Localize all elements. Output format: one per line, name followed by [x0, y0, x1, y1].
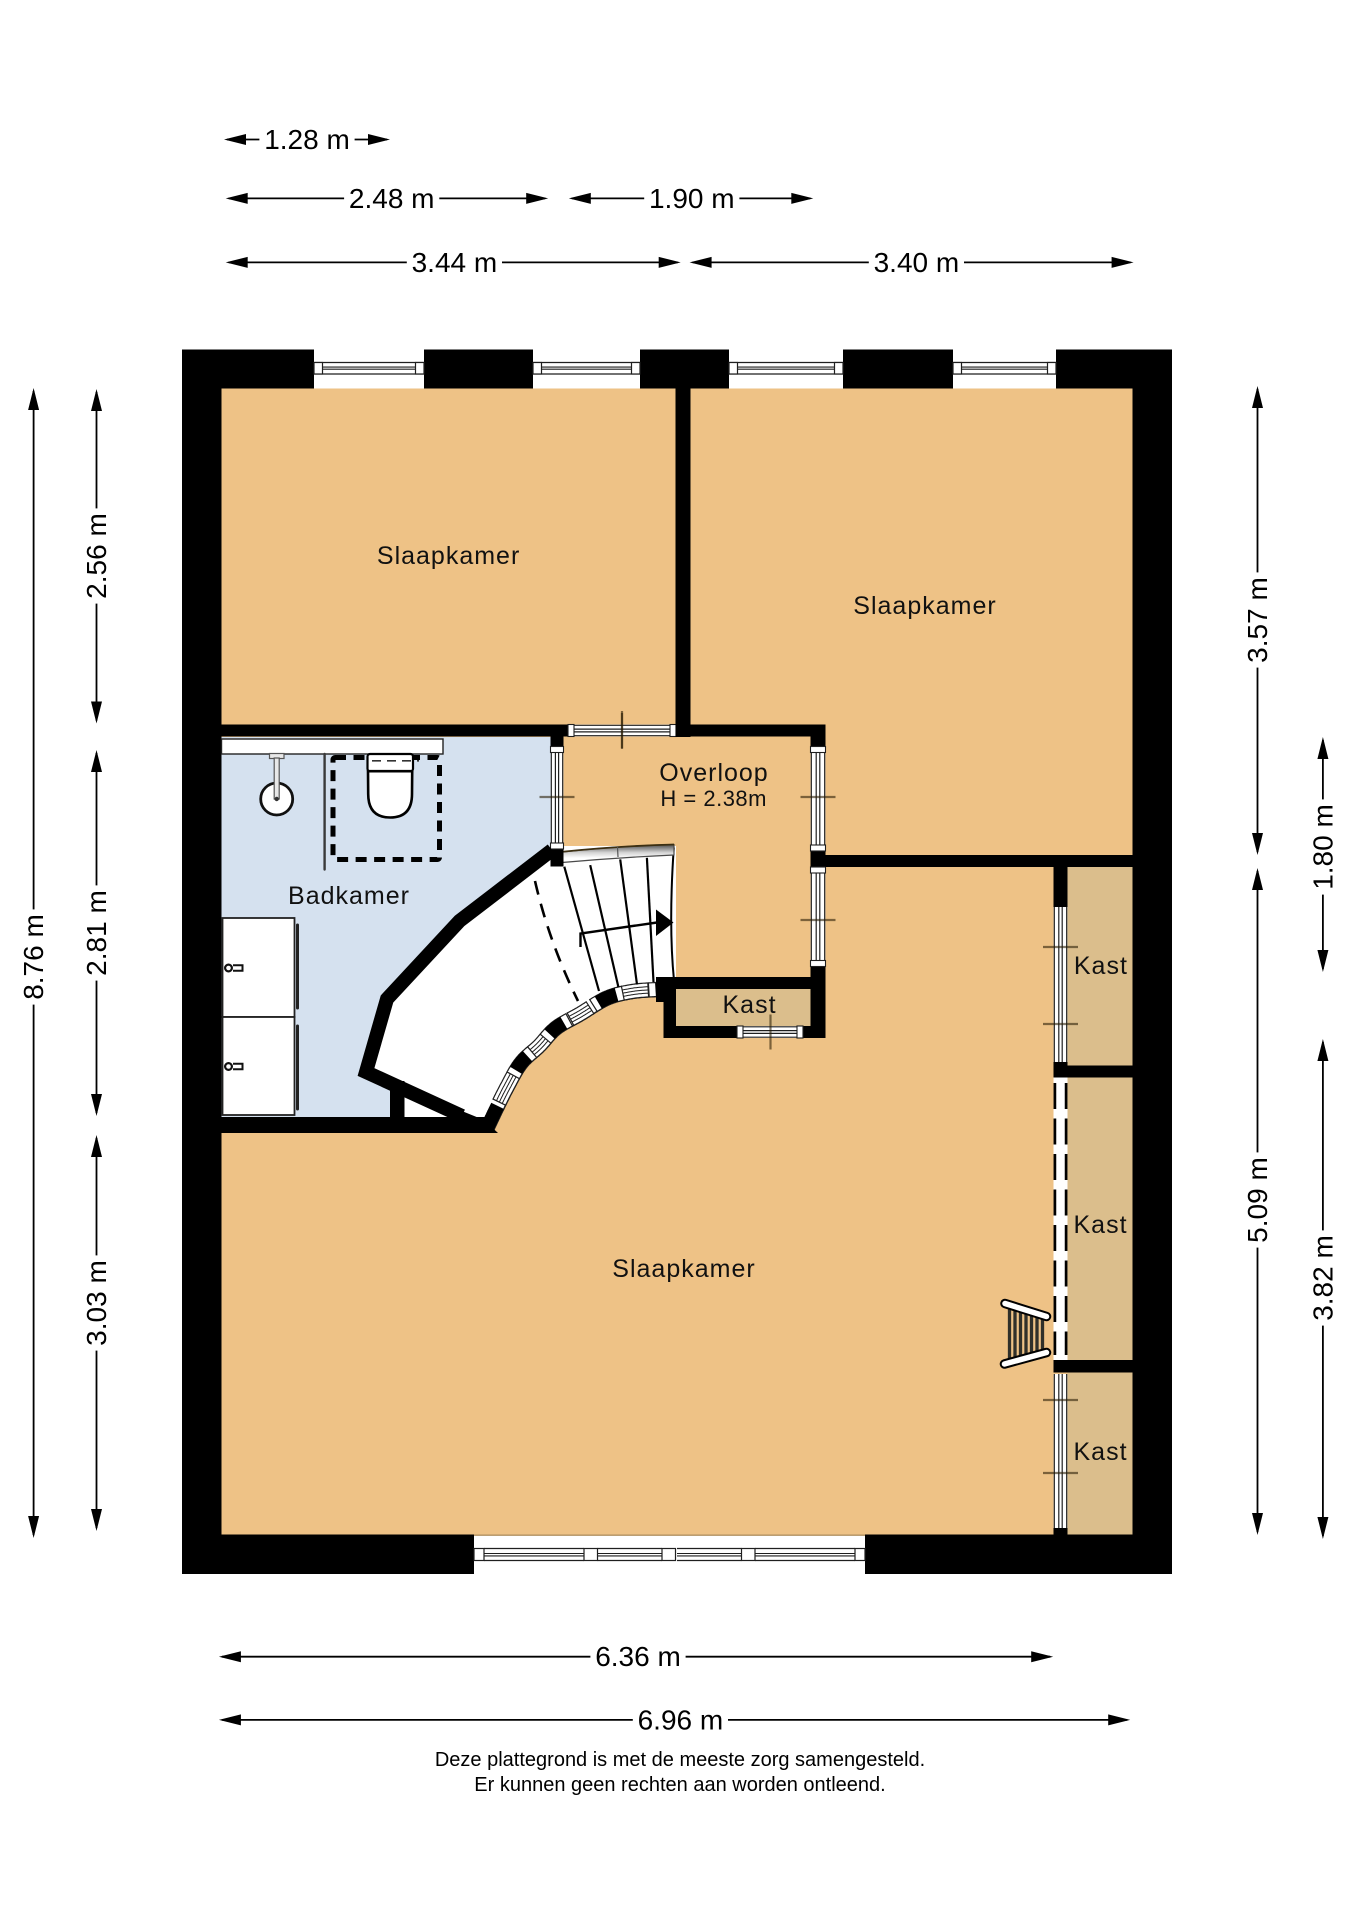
svg-text:3.57 m: 3.57 m — [1242, 577, 1273, 663]
svg-text:8.76 m: 8.76 m — [18, 914, 49, 1000]
svg-text:5.09 m: 5.09 m — [1242, 1157, 1273, 1243]
svg-text:3.44 m: 3.44 m — [412, 247, 498, 278]
svg-text:Slaapkamer: Slaapkamer — [853, 592, 996, 620]
svg-text:Deze plattegrond is met de mee: Deze plattegrond is met de meeste zorg s… — [435, 1749, 925, 1771]
svg-text:1.90 m: 1.90 m — [649, 183, 735, 214]
svg-text:Kast: Kast — [1074, 952, 1128, 980]
svg-text:Kast: Kast — [722, 991, 776, 1019]
svg-text:1.80 m: 1.80 m — [1307, 804, 1338, 890]
svg-text:2.81 m: 2.81 m — [81, 890, 112, 976]
svg-text:2.48 m: 2.48 m — [349, 183, 435, 214]
svg-text:3.03 m: 3.03 m — [81, 1260, 112, 1346]
svg-text:Badkamer: Badkamer — [288, 882, 410, 910]
svg-text:Kast: Kast — [1073, 1438, 1127, 1466]
svg-text:Kast: Kast — [1073, 1211, 1127, 1239]
svg-text:Slaapkamer: Slaapkamer — [377, 542, 520, 570]
svg-text:2.56 m: 2.56 m — [81, 513, 112, 599]
svg-text:Er kunnen geen rechten aan wor: Er kunnen geen rechten aan worden ontlee… — [474, 1774, 885, 1796]
svg-text:Overloop: Overloop — [659, 759, 768, 787]
svg-text:3.82 m: 3.82 m — [1307, 1235, 1338, 1321]
svg-text:3.40 m: 3.40 m — [874, 247, 960, 278]
svg-text:1.28 m: 1.28 m — [264, 124, 350, 155]
svg-text:6.36 m: 6.36 m — [595, 1641, 681, 1672]
svg-text:H = 2.38m: H = 2.38m — [660, 786, 767, 811]
svg-text:Slaapkamer: Slaapkamer — [612, 1255, 755, 1283]
svg-text:6.96 m: 6.96 m — [638, 1704, 724, 1735]
